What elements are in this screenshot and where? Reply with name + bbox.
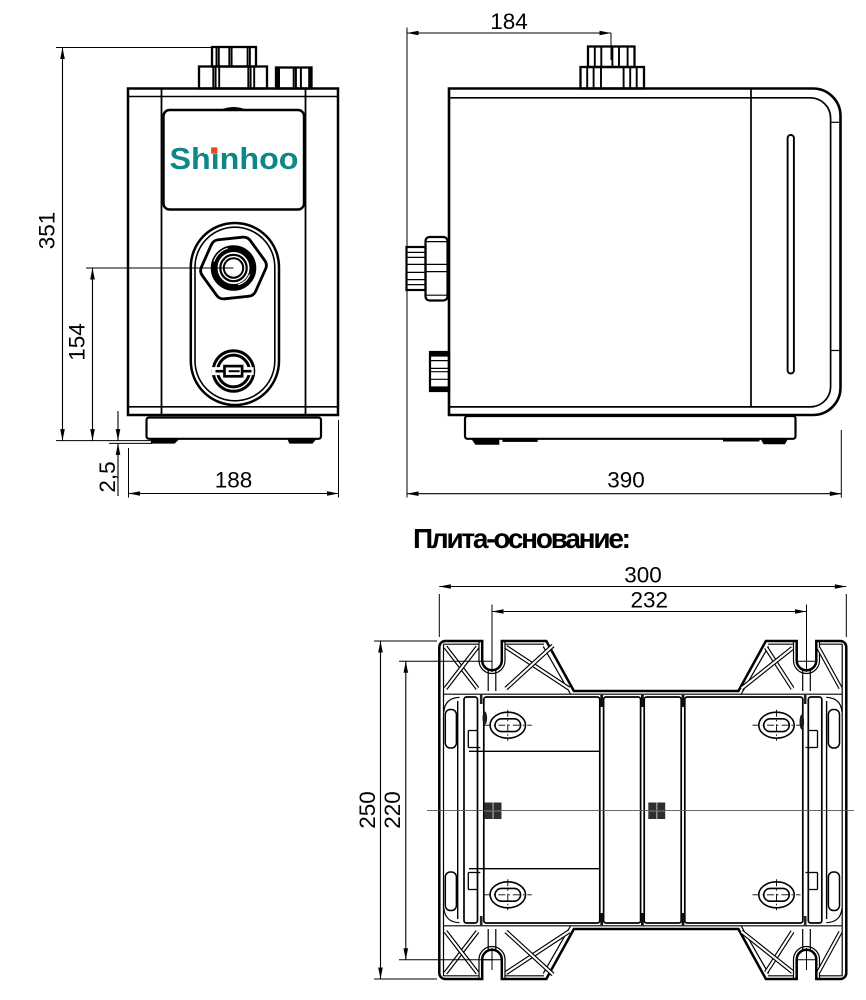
svg-text:188: 188 bbox=[215, 468, 253, 493]
svg-text:250: 250 bbox=[355, 791, 380, 829]
svg-text:Плита-основание:: Плита-основание: bbox=[413, 523, 631, 554]
svg-text:390: 390 bbox=[607, 468, 645, 493]
svg-text:Shinhoo: Shinhoo bbox=[170, 141, 299, 176]
svg-text:2,5: 2,5 bbox=[95, 461, 120, 492]
svg-text:351: 351 bbox=[35, 212, 60, 250]
svg-text:154: 154 bbox=[65, 323, 90, 361]
svg-text:300: 300 bbox=[624, 563, 662, 588]
svg-text:232: 232 bbox=[631, 588, 669, 613]
svg-text:220: 220 bbox=[380, 791, 405, 829]
svg-text:184: 184 bbox=[490, 9, 528, 34]
